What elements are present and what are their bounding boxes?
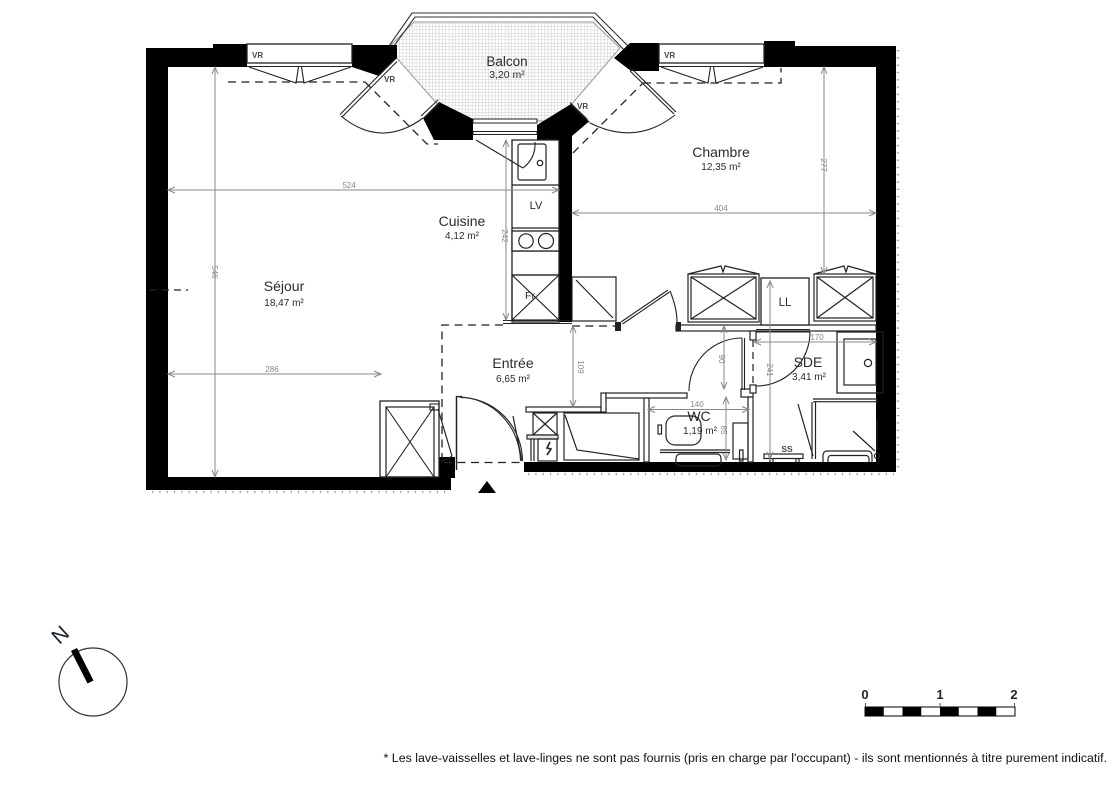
svg-text:VR: VR [252,51,263,60]
svg-text:3,20 m²: 3,20 m² [489,69,525,81]
svg-text:VR: VR [577,102,588,111]
svg-text:VR: VR [664,51,675,60]
svg-text:3,41 m²: 3,41 m² [792,372,827,383]
svg-text:LL: LL [779,297,792,309]
svg-text:524: 524 [342,181,356,190]
svg-text:546: 546 [210,265,219,279]
svg-text:109: 109 [576,360,585,374]
svg-text:Séjour: Séjour [264,278,305,294]
svg-text:* Les lave-vaisselles et lave-: * Les lave-vaisselles et lave-linges ne … [384,751,1107,765]
svg-text:242: 242 [500,229,509,243]
svg-text:Cuisine: Cuisine [439,213,486,229]
svg-text:Entrée: Entrée [492,355,533,371]
svg-text:1: 1 [936,687,943,702]
svg-text:286: 286 [265,365,279,374]
svg-text:2: 2 [1010,687,1017,702]
svg-text:VR: VR [384,75,395,84]
svg-text:Balcon: Balcon [486,54,527,69]
svg-text:LV: LV [530,200,543,212]
svg-text:241: 241 [765,363,774,377]
svg-text:6,65 m²: 6,65 m² [496,374,531,385]
svg-text:SDE: SDE [794,354,823,370]
svg-text:90: 90 [717,355,726,364]
svg-text:0: 0 [861,687,868,702]
svg-text:277: 277 [819,158,828,172]
svg-text:Fr: Fr [525,290,535,302]
svg-text:170: 170 [810,333,824,342]
svg-text:404: 404 [714,204,728,213]
svg-text:SS: SS [781,444,793,454]
svg-text:Chambre: Chambre [692,144,750,160]
svg-text:12,35 m²: 12,35 m² [701,162,741,173]
svg-text:1,19 m²: 1,19 m² [683,426,718,437]
svg-text:4,12 m²: 4,12 m² [445,231,480,242]
svg-text:140: 140 [690,400,704,409]
svg-text:85: 85 [719,426,728,435]
svg-text:18,47 m²: 18,47 m² [264,298,304,309]
